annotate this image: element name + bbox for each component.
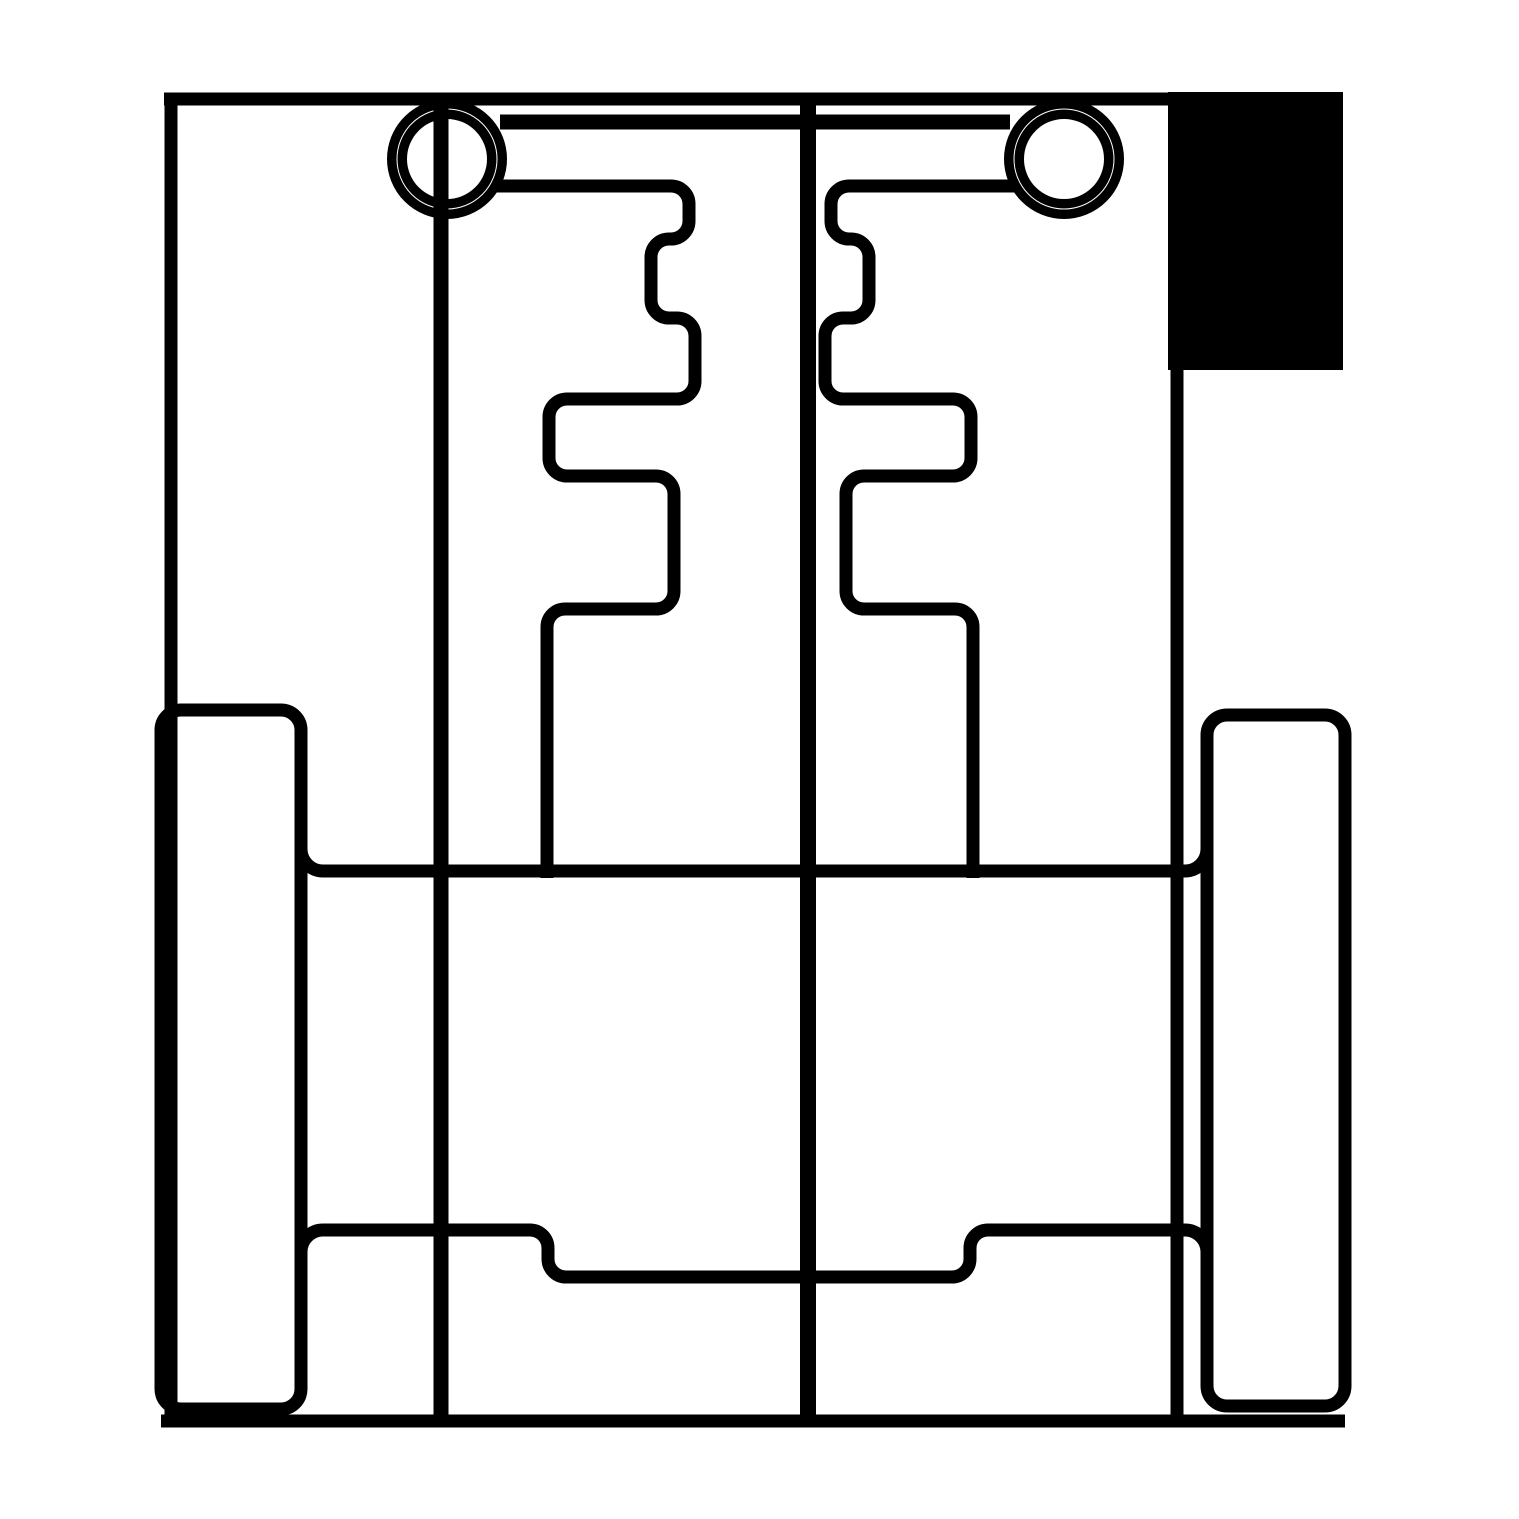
technical-drawing-page bbox=[0, 0, 1519, 1519]
technical-drawing-canvas bbox=[0, 0, 1519, 1519]
solid-fill-block bbox=[1168, 92, 1343, 370]
